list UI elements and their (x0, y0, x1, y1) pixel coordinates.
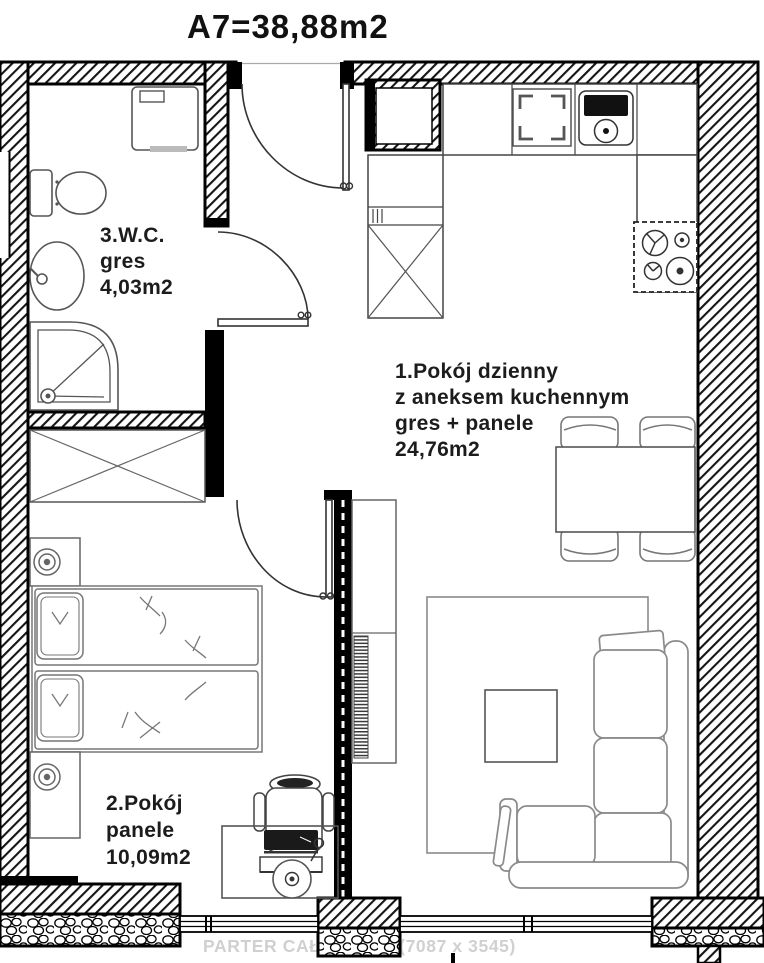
living-window (400, 916, 652, 932)
laptop (264, 830, 318, 854)
coffee-table (485, 690, 557, 762)
plan-title: A7=38,88m2 (187, 8, 389, 46)
bedroom-label: 2.Pokój panele 10,09m2 (106, 790, 191, 871)
living-room-area: 24,76m2 (395, 437, 629, 463)
bedroom-door (237, 500, 334, 599)
entrance-door (242, 84, 353, 190)
wc-room-area: 4,03m2 (100, 275, 173, 301)
double-bed (32, 586, 262, 752)
nightstand-top (30, 538, 80, 586)
stool (273, 860, 311, 898)
wc-room-floor: gres (100, 249, 173, 275)
kitchen-shaft (366, 80, 440, 150)
living-room-floor: gres + panele (395, 411, 629, 437)
living-furniture (352, 417, 695, 888)
floor-plan: PARTER CAŁOŚĆ.jpg (7087 x 3545) (0, 0, 764, 963)
living-room-label: 1.Pokój dzienny z aneksem kuchennym gres… (395, 359, 629, 463)
tv (354, 636, 368, 758)
desk-area (222, 775, 338, 898)
kitchen-sink (579, 91, 633, 145)
neighbor-opening (0, 152, 9, 258)
living-room-name2: z aneksem kuchennym (395, 385, 629, 411)
bedroom-window (180, 916, 318, 932)
bedroom-name: 2.Pokój (106, 790, 191, 817)
shower (30, 322, 118, 410)
living-room-name: 1.Pokój dzienny (395, 359, 629, 385)
wardrobe (30, 430, 205, 502)
stove (634, 222, 697, 292)
washbasin (30, 242, 84, 310)
washing-machine (132, 87, 198, 152)
toilet (30, 170, 106, 216)
wc-room-label: 3.W.C. gres 4,03m2 (100, 223, 173, 301)
wc-room-name: 3.W.C. (100, 223, 173, 249)
nightstand-bottom (30, 752, 80, 838)
bedroom-area: 10,09m2 (106, 844, 191, 871)
tv-cabinet (352, 500, 396, 763)
wc-door (218, 232, 311, 326)
fridge-cabinet (368, 155, 443, 318)
bedroom-floor: panele (106, 817, 191, 844)
hob-hatch-symbol (513, 89, 571, 146)
